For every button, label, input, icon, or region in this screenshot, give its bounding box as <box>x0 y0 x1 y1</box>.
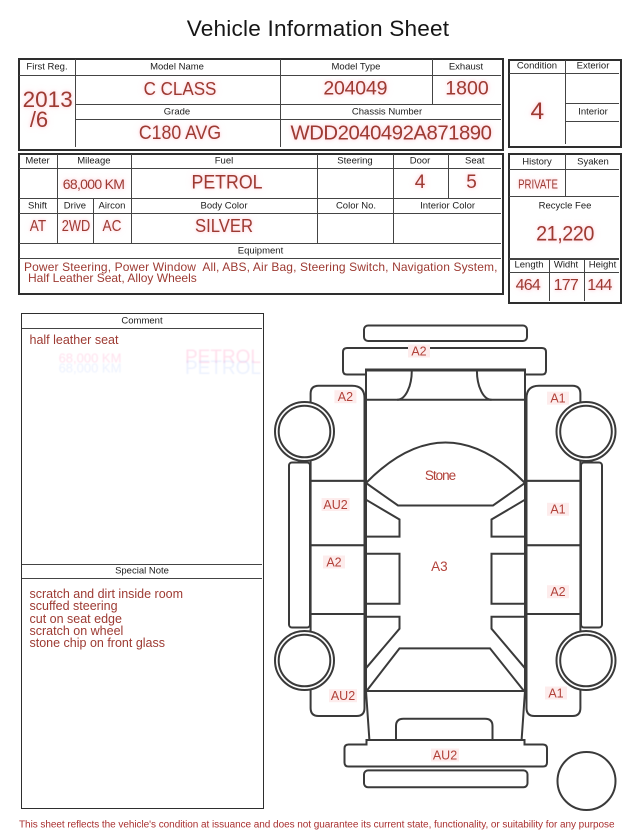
svg-text:A2: A2 <box>338 390 353 404</box>
svg-text:A1: A1 <box>548 686 563 700</box>
svg-text:AU2: AU2 <box>331 689 355 703</box>
svg-text:AU2: AU2 <box>433 748 457 762</box>
svg-text:A3: A3 <box>431 559 448 574</box>
svg-text:AU2: AU2 <box>323 498 347 512</box>
svg-text:A2: A2 <box>411 344 426 358</box>
svg-text:A2: A2 <box>550 585 565 599</box>
svg-text:A1: A1 <box>550 503 565 517</box>
svg-text:A2: A2 <box>326 555 341 569</box>
svg-text:Stone: Stone <box>425 468 456 483</box>
svg-text:A1: A1 <box>550 392 565 406</box>
